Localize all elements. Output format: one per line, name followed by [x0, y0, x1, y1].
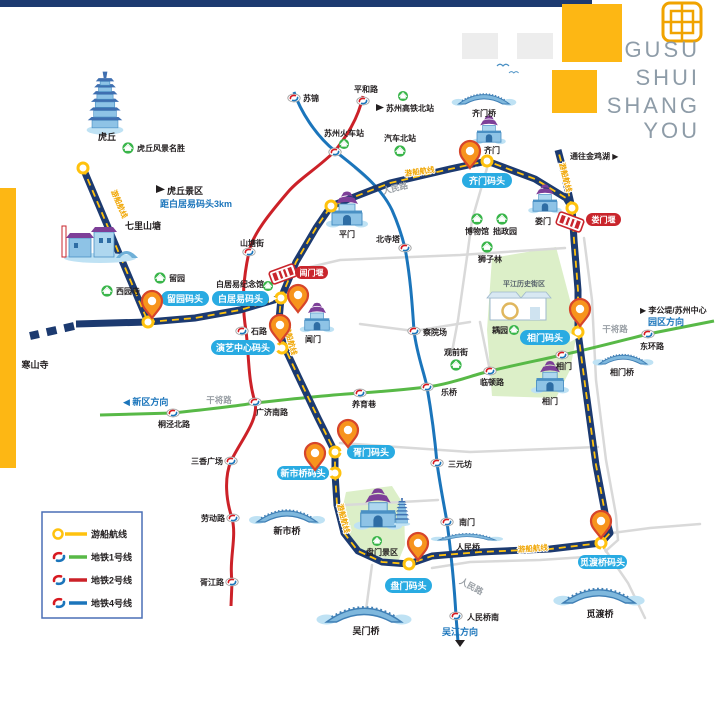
xinshiqiao-bridge-illustration	[249, 510, 325, 524]
dock-xinshiqiao: 新市桥码头	[277, 466, 337, 480]
pin-xinshiqiao	[305, 443, 325, 470]
qilishantang-illustration	[62, 226, 138, 263]
gray-square	[462, 33, 498, 59]
flag-icon	[156, 185, 165, 193]
gold-square-small	[552, 70, 597, 113]
poi-label-zhuozhengyuan: 拙政园	[493, 226, 517, 236]
left-gold-bar	[0, 188, 16, 468]
changmen-weir-icon	[269, 263, 298, 284]
poi-label-huqiu-scenic: 虎丘风景名胜	[137, 143, 185, 153]
station-label-nanmen: 南门	[459, 517, 475, 527]
svg-text:新市桥码头: 新市桥码头	[280, 468, 325, 479]
station-label-railway: 苏州火车站	[324, 128, 364, 138]
station-label-renminqiaonan: 人民桥南	[467, 612, 499, 622]
svg-text:白居易码头: 白居易码头	[218, 293, 263, 304]
poi-label-xiyuansi: 西园寺	[116, 286, 140, 296]
poi-label-shizilin: 狮子林	[477, 254, 502, 264]
svg-text:觅渡桥码头: 觅渡桥码头	[580, 557, 625, 568]
legend-line4-label: 地铁4号线	[91, 598, 132, 609]
station-label-tongjingbeilu: 桐泾北路	[158, 419, 191, 429]
poi-label-guanqianjie: 观前街	[444, 347, 468, 357]
svg-text:胥门码头: 胥门码头	[353, 447, 389, 458]
loumen-weir-icon	[556, 211, 585, 232]
boat-route-hanshansi-dashed	[30, 326, 74, 336]
gold-square-large	[562, 4, 622, 62]
brand-line-1: GUSU	[624, 37, 700, 62]
dock-miduqiao: 觅渡桥码头	[578, 547, 627, 569]
station-label-shantangjie: 山塘街	[240, 238, 264, 248]
legend-boat-node-icon	[54, 530, 63, 539]
direction-yuanqu: 园区方向	[648, 316, 684, 327]
qimen-gate-illustration	[472, 115, 506, 144]
renminqiao-bridge-illustration	[431, 533, 503, 541]
landmark-label-changmen: 阊门	[305, 334, 321, 344]
station-label-leqiao: 乐桥	[441, 387, 458, 397]
note-huqiu-distance: 距白居易码头3km	[160, 198, 232, 209]
landmark-label-hanshansi: 寒山寺	[20, 359, 48, 370]
station-label-yangyuxiang: 养育巷	[351, 399, 377, 409]
station-label-shilu: 石路	[250, 326, 268, 336]
ouyuan-houses-illustration	[487, 292, 551, 320]
svg-text:演艺中心码头: 演艺中心码头	[216, 342, 270, 353]
pingjiang-district-area	[487, 247, 577, 398]
station-label-xiangmen: 相门	[556, 361, 572, 371]
station-label-lindunlu: 临顿路	[480, 377, 505, 387]
landmark-label-miduqiao: 觅渡桥	[586, 608, 614, 619]
svg-text:留园码头: 留园码头	[167, 293, 203, 304]
down-arrow-icon	[455, 640, 465, 647]
lattice-emblem-icon	[663, 3, 701, 41]
direction-jinjihu: 通往金鸡湖 ▶	[570, 151, 619, 161]
road-label-renminlu-bottom: 人民路	[458, 576, 486, 597]
railway-poi-icon	[339, 139, 349, 149]
poi-label-museum: 博物馆	[465, 226, 489, 236]
station-label-donghuanlu: 东环路	[640, 341, 665, 351]
changmen-gate-illustration	[300, 303, 334, 333]
dock-yanyi: 演艺中心码头	[211, 340, 283, 355]
qimenqiao-bridge-illustration	[452, 94, 517, 106]
direction-ligongdi: ▶ 李公堤/苏州中心	[640, 305, 707, 315]
loumen-weir-badge: 娄门堰	[586, 213, 621, 226]
landmark-label-wumenqiao: 吴门桥	[352, 625, 380, 636]
direction-wujiang: 吴江方向	[442, 626, 478, 637]
legend-line2-label: 地铁2号线	[91, 575, 132, 586]
legend: 游船航线 地铁1号线 地铁2号线 地铁4号线	[42, 512, 142, 618]
station-label-xujianglu: 胥江路	[200, 577, 225, 587]
note-huqiu-title: 虎丘景区	[167, 185, 203, 196]
brand-line-2: SHUI	[635, 65, 700, 90]
birds-icon	[497, 64, 509, 66]
poi-label-ouyuan: 耦园	[492, 325, 508, 335]
gray-square	[517, 33, 553, 59]
landmark-label-xiangmenqiao: 相门桥	[610, 367, 635, 377]
landmark-label-xinshiqiao: 新市桥	[273, 525, 301, 536]
changmen-weir-label: 阊门堰	[300, 268, 324, 278]
loumen-weir-label: 娄门堰	[592, 215, 616, 225]
station-label-beisita: 北寺塔	[376, 234, 401, 244]
pin-baijuyi	[288, 285, 308, 312]
route-label: 游船航线	[557, 162, 574, 194]
landmark-label-huqiu: 虎丘	[98, 131, 116, 142]
landmark-label-qilishantang: 七里山塘	[125, 220, 161, 231]
landmark-label-pingmen: 平门	[339, 229, 355, 239]
svg-text:齐门码头: 齐门码头	[469, 175, 505, 186]
station-label-sujin: 苏锦	[303, 93, 319, 103]
direction-xinqu: ◀ 新区方向	[123, 396, 168, 407]
landmark-label-renminqiao: 人民桥	[456, 542, 481, 552]
brand-line-3: SHANG	[607, 93, 700, 118]
station-label-sanxiangguangchang: 三香广场	[191, 456, 223, 466]
road-label-ganjianglu-east: 干将路	[602, 324, 628, 334]
top-navy-bar	[0, 0, 592, 7]
gusu-water-tour-map: 游船航线 游船航线 游船航线 游船航线 游船航线 游船航线 阊门堰 娄门堰	[0, 0, 716, 717]
landmark-label-qimenqiao: 齐门桥	[471, 108, 497, 118]
road-label-ganjianglu-west: 干将路	[206, 395, 232, 405]
poi-label-liuyuan: 留园	[169, 273, 185, 283]
landmark-label-xiangmen-gate: 相门	[542, 396, 558, 406]
dock-liuyuan: 留园码头	[161, 291, 209, 316]
flag-icon	[376, 104, 384, 111]
station-label-chayuanchang: 察院场	[423, 327, 447, 337]
birds-icon	[509, 72, 519, 73]
station-label-sanyuanfang: 三元坊	[448, 459, 472, 469]
station-label-laodonglu: 劳动路	[201, 513, 226, 523]
poi-label-baijuyi-hall: 白居易纪念馆	[216, 279, 264, 289]
poi-label-gaotiebeizhan: 苏州高铁北站	[386, 103, 434, 113]
station-label-pinghelu: 平和路	[354, 84, 379, 94]
dock-panmen: 盘门码头	[385, 570, 432, 593]
landmark-label-loumen: 娄门	[535, 216, 551, 226]
wumenqiao-bridge-illustration	[317, 607, 412, 625]
legend-line1-label: 地铁1号线	[91, 552, 132, 563]
route-label: 游船航线	[109, 188, 130, 220]
landmark-label-qimen: 齐门	[483, 145, 500, 155]
poi-label-qichebeizhan: 汽车北站	[384, 133, 416, 143]
route-label: 游船航线	[517, 542, 548, 554]
huqiu-pagoda-illustration	[87, 72, 124, 135]
legend-boat-label: 游船航线	[91, 529, 127, 540]
svg-text:相门码头: 相门码头	[527, 332, 563, 343]
svg-text:盘门码头: 盘门码头	[390, 580, 426, 591]
landmark-label-pingjiang: 平江历史街区	[503, 279, 545, 288]
brand-line-4: YOU	[643, 118, 700, 143]
station-label-guangjinanlu: 广济南路	[256, 407, 289, 417]
poi-label-panmen-scenic: 盘门景区	[366, 547, 398, 557]
xiangmenqiao-bridge-illustration	[593, 354, 654, 365]
changmen-weir-badge: 阊门堰	[295, 266, 328, 279]
